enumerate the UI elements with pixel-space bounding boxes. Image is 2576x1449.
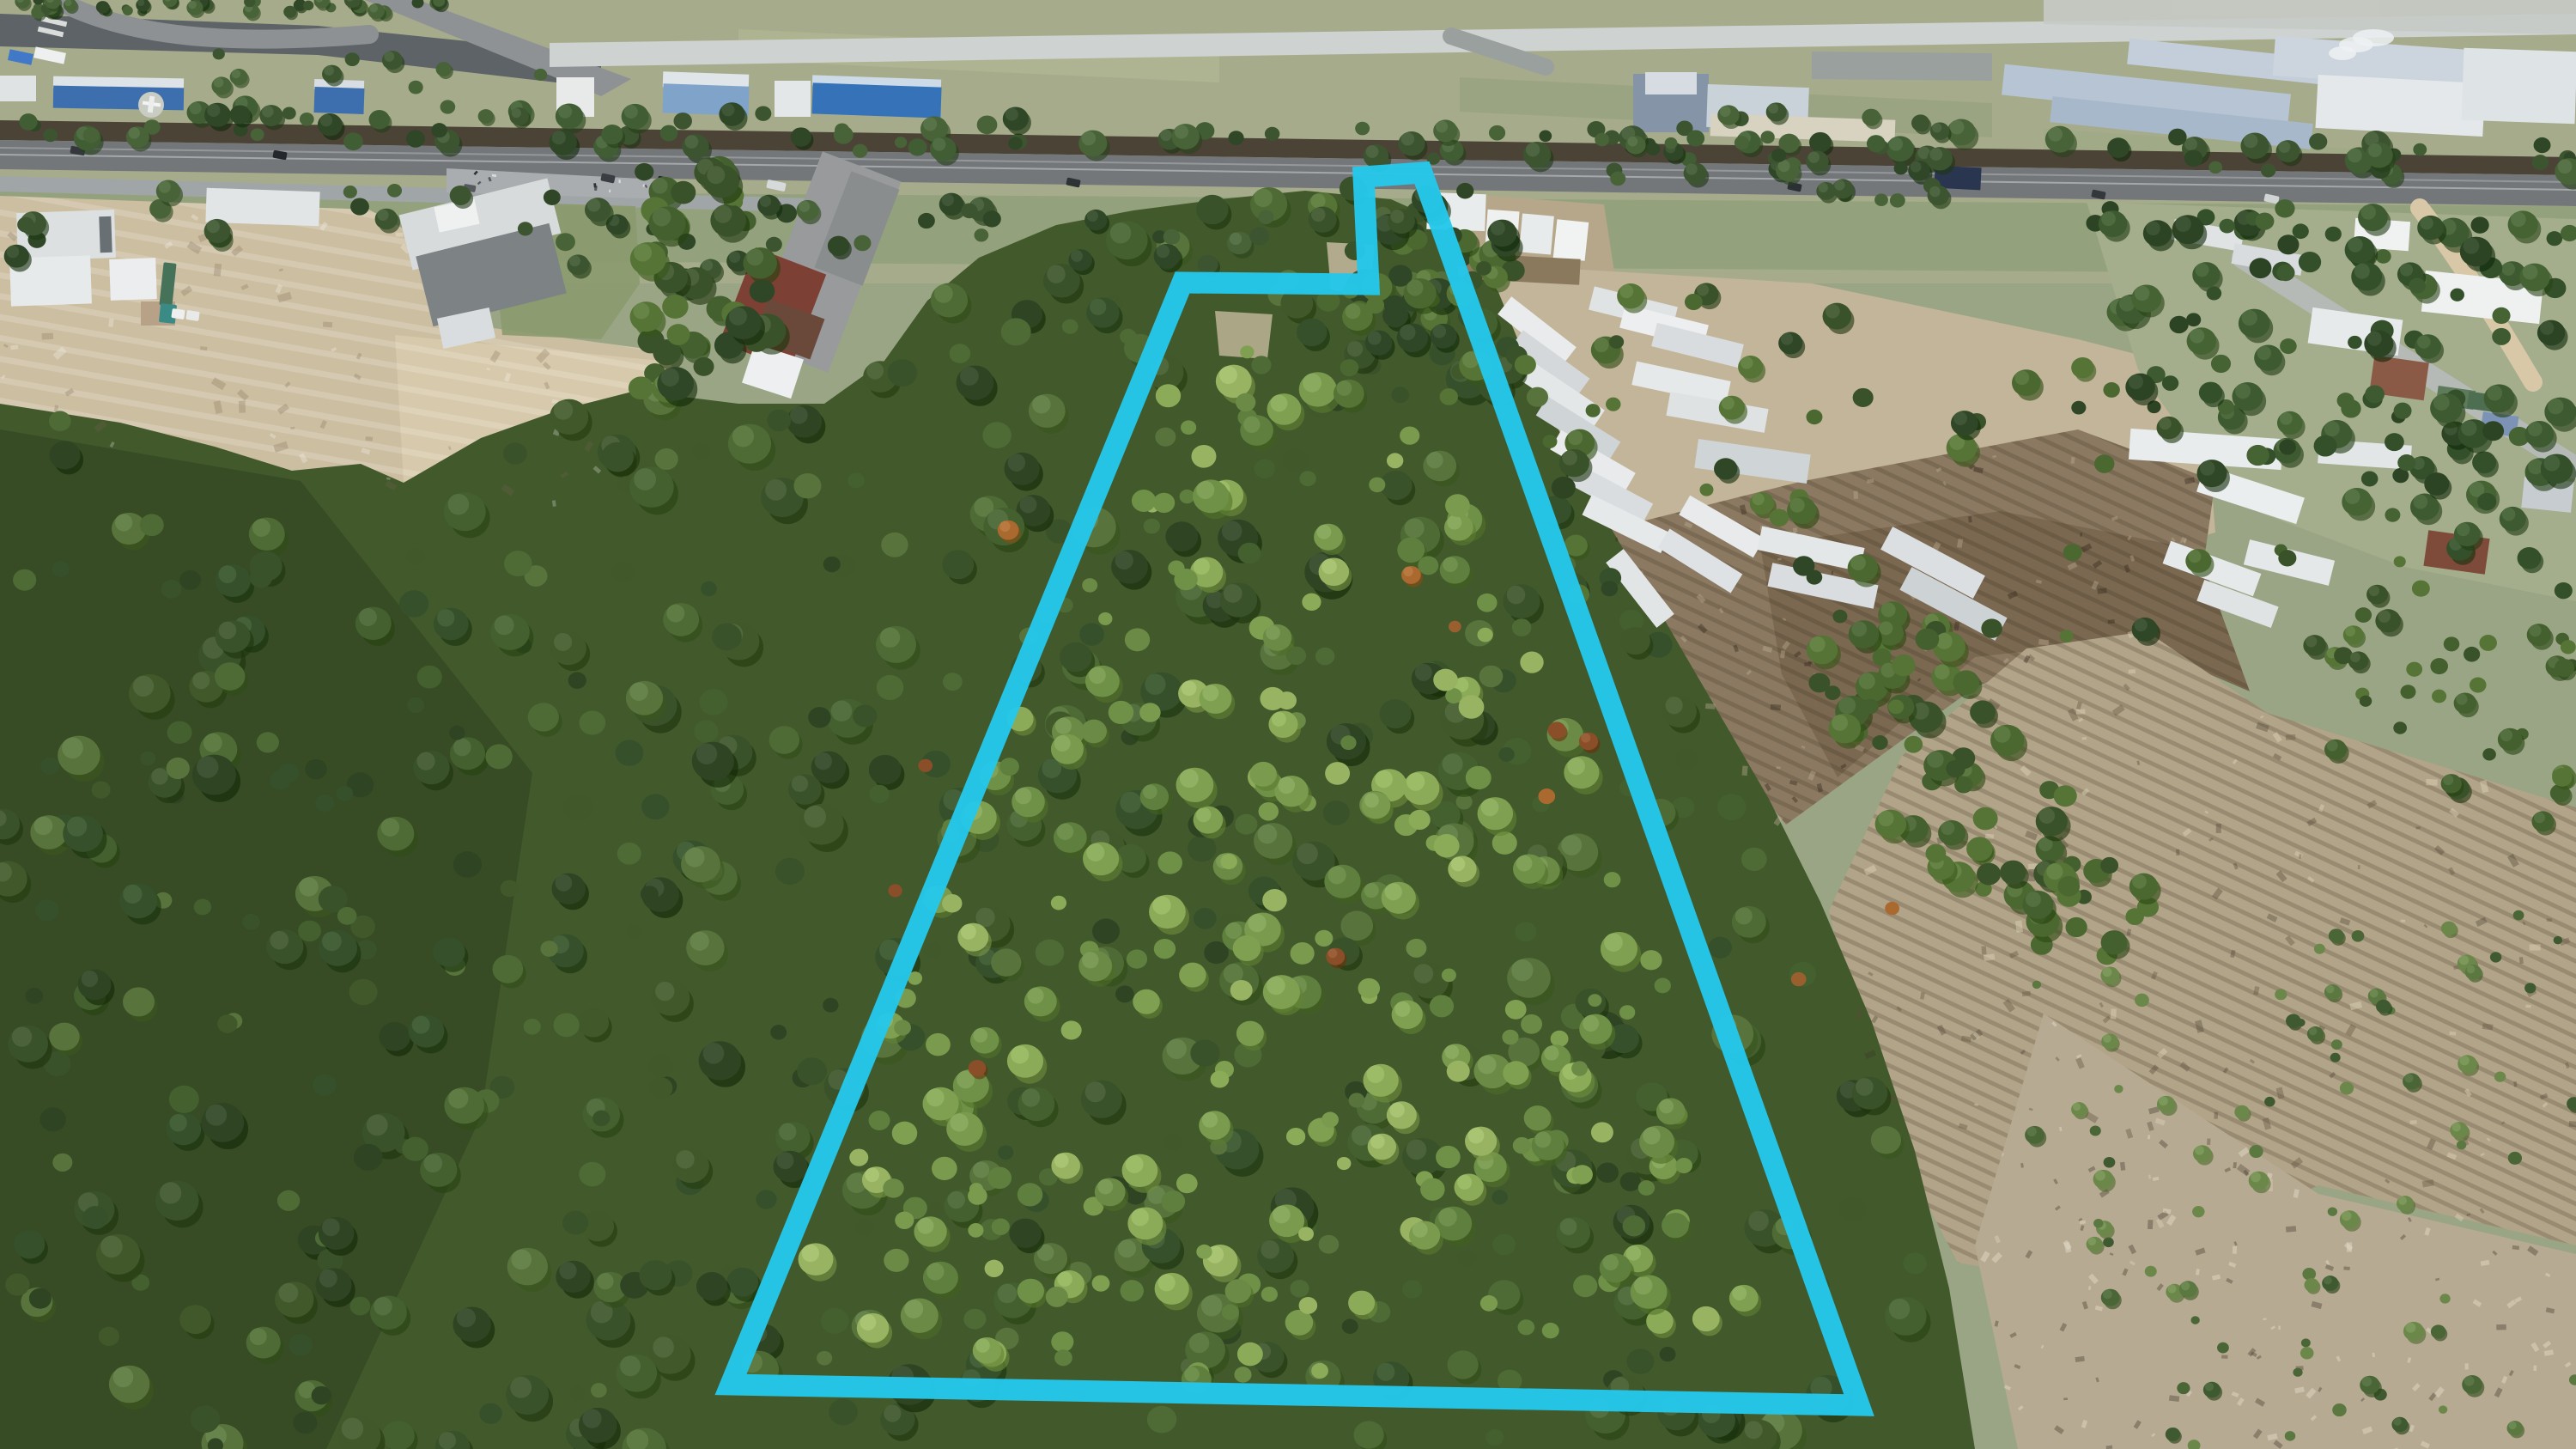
tree-highlight: [1643, 1127, 1660, 1144]
tree-crown: [1489, 125, 1505, 141]
tree-highlight: [1327, 948, 1337, 958]
tree-crown: [1586, 404, 1601, 417]
tree-highlight: [1686, 163, 1697, 174]
tree-crown: [1132, 490, 1156, 512]
tree-highlight: [2487, 386, 2502, 401]
field-speckles: [2569, 1121, 2576, 1128]
tree-crown: [983, 210, 1001, 228]
tree-highlight: [1028, 988, 1044, 1004]
tree-highlight: [1544, 1046, 1558, 1061]
tree-crown: [1620, 1172, 1641, 1191]
tree-crown: [1233, 935, 1261, 961]
tree-highlight: [1266, 625, 1280, 640]
tree-crown: [1125, 628, 1150, 651]
tree-crown: [1349, 1093, 1365, 1107]
tree-highlight: [2103, 967, 2112, 977]
tree-crown: [479, 1403, 501, 1424]
tree-highlight: [1953, 411, 1967, 425]
tree-crown: [2355, 607, 2372, 623]
tree-highlight: [1011, 1045, 1029, 1063]
tree-crown: [612, 562, 635, 582]
tree-highlight: [1732, 1286, 1747, 1300]
tree-highlight: [2095, 1171, 2105, 1181]
tree-highlight: [2188, 550, 2201, 563]
tree-highlight: [1032, 395, 1050, 413]
tree-highlight: [1405, 518, 1425, 538]
tree-highlight: [1929, 148, 1942, 161]
tree-crown: [2409, 278, 2426, 294]
aerial-photo: [0, 0, 2576, 1449]
tree-highlight: [975, 1338, 990, 1353]
tree-highlight: [559, 1262, 576, 1279]
tree-crown: [1081, 720, 1107, 744]
tree-highlight: [129, 127, 141, 139]
tree-crown: [562, 1211, 588, 1235]
tree-crown: [1498, 747, 1514, 762]
tree-crown: [2199, 382, 2222, 404]
dark-dirt-speckles: [2097, 588, 2106, 594]
tree-crown: [577, 1008, 609, 1038]
tree-highlight: [1385, 883, 1402, 900]
tree-highlight: [2146, 221, 2160, 235]
tree-highlight: [1347, 341, 1363, 356]
tree-crown: [1692, 1306, 1720, 1331]
tree-crown: [1282, 448, 1308, 472]
tree-crown: [1449, 621, 1461, 633]
tree-highlight: [2457, 523, 2470, 536]
tree-highlight: [1526, 143, 1540, 156]
tree-highlight: [1859, 673, 1875, 689]
tree-highlight: [1413, 1222, 1428, 1238]
tree-crown: [1191, 445, 1216, 468]
tree-crown: [35, 899, 59, 922]
tree-crown: [2184, 150, 2202, 167]
field-speckles: [2358, 865, 2360, 869]
tree-highlight: [1443, 753, 1463, 774]
tree-crown: [829, 1398, 858, 1425]
tree-highlight: [2456, 693, 2467, 704]
tree-crown: [1254, 459, 1275, 478]
tree-highlight: [1225, 922, 1242, 939]
tree-crown: [641, 886, 659, 902]
tree-highlight: [1085, 1081, 1106, 1102]
tree-crown: [1181, 420, 1196, 435]
tree-crown: [592, 1111, 610, 1127]
tree-highlight: [160, 1182, 181, 1203]
tree-crown: [2361, 471, 2379, 486]
tree-crown: [2275, 199, 2294, 217]
tree-highlight: [252, 519, 270, 537]
tree-highlight: [904, 1300, 923, 1318]
tree-crown: [1492, 1234, 1516, 1256]
tree-highlight: [1202, 1112, 1218, 1128]
tree-crown: [19, 113, 37, 131]
tree-highlight: [2367, 332, 2382, 346]
tree-crown: [1008, 137, 1023, 149]
tree-highlight: [151, 768, 167, 784]
tree-highlight: [2038, 807, 2055, 824]
tree-crown: [1808, 673, 1830, 692]
tree-crown: [1325, 762, 1350, 785]
tree-crown: [2217, 1342, 2229, 1354]
tree-crown: [849, 1148, 868, 1166]
tree-crown: [191, 1405, 221, 1433]
tree-highlight: [655, 982, 674, 1001]
tree-crown: [2302, 1268, 2316, 1280]
tree-crown: [1286, 1128, 1305, 1145]
tree-highlight: [1834, 180, 1844, 190]
tree-crown: [950, 344, 971, 363]
tree-crown: [2261, 163, 2275, 177]
tree-crown: [1079, 623, 1104, 645]
tree-crown: [2472, 451, 2496, 473]
tree-highlight: [67, 817, 87, 837]
tree-crown: [2555, 659, 2574, 677]
tree-highlight: [947, 1191, 965, 1209]
tree-highlight: [1443, 557, 1458, 572]
tree-highlight: [2046, 863, 2063, 880]
tree-highlight: [270, 931, 289, 950]
tree-crown: [293, 1412, 317, 1434]
dark-dirt-speckles: [1771, 704, 1781, 711]
tree-crown: [1660, 1347, 1676, 1361]
tree-crown: [350, 198, 369, 216]
tree-highlight: [1248, 914, 1266, 932]
tree-crown: [2309, 133, 2327, 150]
tree-crown: [1458, 1249, 1477, 1267]
tree-crown: [1953, 670, 1979, 694]
tree-crown: [1542, 1323, 1559, 1338]
tree-highlight: [1310, 193, 1325, 208]
tree-crown: [701, 581, 717, 596]
tree-crown: [998, 1145, 1013, 1160]
tree-highlight: [416, 752, 434, 770]
dark-dirt-speckles: [2080, 533, 2082, 536]
tree-highlight: [2362, 1377, 2372, 1387]
tree-crown: [1165, 521, 1198, 551]
tree-crown: [696, 1272, 727, 1300]
tree-crown: [2190, 1316, 2199, 1324]
tree-crown: [1321, 1112, 1339, 1128]
tree-crown: [1190, 1039, 1219, 1066]
tree-crown: [1807, 570, 1823, 585]
tree-crown: [1161, 1190, 1185, 1213]
tree-crown: [1197, 255, 1218, 274]
tree-crown: [169, 1086, 199, 1113]
tree-highlight: [1054, 735, 1071, 752]
tree-crown: [2100, 857, 2118, 874]
tree-crown: [895, 1212, 914, 1229]
tree-highlight: [82, 971, 98, 987]
tree-crown: [544, 190, 561, 205]
tree-crown: [2101, 930, 2128, 954]
tree-crown: [2255, 213, 2274, 230]
tree-highlight: [1516, 855, 1533, 872]
tree-crown: [1466, 766, 1492, 790]
tree-highlight: [1015, 788, 1031, 804]
tree-crown: [1518, 1319, 1535, 1335]
tree-crown: [1867, 135, 1886, 152]
tree-crown: [2331, 1039, 2342, 1050]
tree-crown: [1164, 1134, 1182, 1150]
tree-highlight: [2244, 134, 2258, 149]
tree-crown: [1156, 384, 1181, 407]
tree-crown: [1894, 162, 1908, 175]
tree-crown: [1606, 398, 1620, 411]
tree-crown: [1176, 1174, 1198, 1194]
tree-highlight: [1832, 715, 1848, 731]
tree-highlight: [1087, 210, 1098, 222]
tree-crown: [892, 1122, 918, 1145]
field-speckles: [2525, 1005, 2530, 1008]
tree-highlight: [1394, 1002, 1410, 1017]
tree-crown: [2192, 1206, 2204, 1217]
tree-highlight: [880, 627, 900, 647]
tree-highlight: [1097, 1179, 1113, 1195]
tree-crown: [1299, 1297, 1318, 1314]
tree-crown: [982, 422, 1011, 448]
tree-crown: [877, 675, 904, 700]
yard-speckles: [290, 427, 295, 429]
field-speckles: [1985, 834, 1994, 839]
tree-crown: [2431, 1324, 2446, 1338]
field-speckles: [2214, 1112, 2218, 1119]
tree-crown: [2293, 223, 2309, 239]
tree-crown: [2032, 981, 2041, 989]
tree-crown: [407, 549, 425, 565]
tree-crown: [1806, 410, 1822, 424]
scrub-speckles: [2533, 1366, 2537, 1372]
tree-crown: [1250, 762, 1277, 787]
tree-crown: [2534, 137, 2551, 153]
tree-crown: [1619, 1005, 1635, 1020]
tree-crown: [2114, 1085, 2123, 1093]
tree-crown: [1665, 137, 1678, 149]
tree-crown: [2208, 161, 2222, 174]
tree-highlight: [1850, 555, 1866, 570]
tree-crown: [817, 1351, 832, 1366]
tree-crown: [1179, 963, 1206, 988]
tree-highlight: [2500, 729, 2512, 741]
field-speckles: [2401, 919, 2406, 922]
tree-crown: [2513, 910, 2524, 921]
tree-highlight: [1491, 221, 1505, 235]
tree-crown: [1238, 543, 1261, 564]
tree-highlight: [1224, 584, 1242, 603]
tree-crown: [629, 376, 653, 399]
tree-highlight: [2368, 143, 2382, 157]
tree-crown: [1791, 972, 1807, 986]
tree-crown: [2314, 944, 2325, 954]
tree-crown: [556, 233, 575, 251]
tree-crown: [1319, 1235, 1340, 1254]
tree-crown: [1503, 1061, 1528, 1085]
tree-highlight: [1194, 558, 1210, 575]
tree-crown: [2441, 922, 2457, 936]
tree-crown: [167, 721, 192, 744]
tree-crown: [2220, 219, 2235, 234]
tree-highlight: [1184, 1367, 1199, 1381]
tree-highlight: [1057, 824, 1073, 840]
tree-crown: [1036, 940, 1065, 966]
tree-highlight: [1189, 1333, 1209, 1353]
tree-crown: [895, 137, 907, 148]
tree-highlight: [1346, 304, 1361, 320]
tree-highlight: [510, 1377, 532, 1398]
tree-crown: [591, 1383, 607, 1397]
tree-crown: [305, 759, 327, 779]
tree-crown: [504, 551, 532, 576]
tree-crown: [2341, 399, 2360, 417]
tree-crown: [1051, 896, 1066, 910]
tree-crown: [2470, 216, 2488, 234]
tree-crown: [436, 62, 452, 76]
tree-crown: [821, 1308, 849, 1334]
tree-crown: [1433, 669, 1457, 691]
tree-highlight: [2327, 740, 2338, 752]
tree-crown: [1163, 229, 1181, 245]
tree-highlight: [204, 734, 222, 752]
tree-highlight: [2088, 1237, 2097, 1245]
tree-crown: [999, 758, 1019, 776]
tree-highlight: [799, 201, 810, 212]
tree-crown: [2275, 989, 2287, 1000]
tree-crown: [2444, 636, 2460, 651]
tree-crown: [1588, 994, 1601, 1007]
tree-highlight: [1328, 866, 1346, 884]
tree-crown: [2393, 721, 2407, 734]
tree-highlight: [831, 701, 852, 721]
tree-crown: [2555, 582, 2573, 599]
tree-crown: [1265, 127, 1280, 141]
tree-crown: [2264, 1097, 2275, 1107]
tree-highlight: [1090, 299, 1106, 315]
yard-speckles: [239, 401, 246, 413]
tree-crown: [409, 81, 423, 94]
tree-crown: [1966, 837, 1993, 861]
tree-highlight: [2398, 1196, 2407, 1205]
tree-crown: [1770, 508, 1789, 527]
tree-highlight: [7, 246, 20, 259]
tree-crown: [1340, 910, 1373, 941]
tree-crown: [2300, 1347, 2314, 1359]
tree-highlight: [1202, 685, 1218, 701]
tree-crown: [2071, 357, 2093, 378]
tree-crown: [1299, 471, 1315, 486]
tree-crown: [1685, 294, 1703, 310]
tree-crown: [345, 52, 360, 66]
tree-crown: [1109, 701, 1134, 724]
tree-crown: [1838, 1197, 1866, 1222]
tree-highlight: [1126, 1155, 1144, 1173]
tree-highlight: [934, 284, 953, 303]
tree-crown: [854, 235, 871, 251]
tree-crown: [1675, 749, 1698, 770]
tree-crown: [96, 1, 110, 13]
tree-crown: [1369, 478, 1385, 493]
tree-crown: [2170, 316, 2189, 333]
tree-crown: [2518, 547, 2542, 569]
tree-highlight: [998, 1284, 1018, 1304]
tree-crown: [726, 1268, 758, 1297]
tree-crown: [963, 1309, 986, 1330]
tree-highlight: [1271, 395, 1288, 412]
tree-highlight: [1082, 131, 1097, 146]
tree-highlight: [1131, 1209, 1149, 1227]
tree-highlight: [2350, 652, 2360, 662]
scrub-speckles: [2278, 1326, 2281, 1330]
tree-highlight: [457, 1308, 476, 1327]
tree-crown: [1384, 295, 1405, 314]
tree-crown: [985, 1260, 1004, 1277]
warehouse-white-1: [2316, 75, 2486, 137]
tree-highlight: [437, 609, 454, 626]
tree-highlight: [2026, 892, 2041, 907]
aerial-photo-canvas: [0, 0, 2576, 1449]
tree-highlight: [369, 4, 378, 13]
tree-highlight: [707, 166, 725, 184]
field-speckles: [2076, 709, 2086, 715]
tree-highlight: [927, 1088, 945, 1106]
tree-highlight: [1562, 450, 1577, 466]
tree-crown: [540, 941, 557, 957]
tree-crown: [453, 851, 482, 877]
tree-crown: [2249, 1145, 2263, 1158]
tree-crown: [987, 1167, 1012, 1190]
tree-crown: [2250, 258, 2272, 278]
tree-crown: [1400, 426, 1419, 444]
tree-crown: [1154, 939, 1176, 959]
tree-highlight: [1406, 279, 1423, 295]
tree-highlight: [1720, 106, 1731, 117]
tree-highlight: [2181, 1282, 2190, 1290]
tree-highlight: [1560, 1218, 1577, 1235]
tree-crown: [215, 662, 246, 691]
tree-crown: [2135, 994, 2149, 1007]
tree-highlight: [1415, 664, 1432, 681]
tree-highlight: [34, 817, 53, 836]
tree-crown: [648, 1055, 673, 1078]
tree-crown: [26, 988, 43, 1004]
tree-highlight: [205, 1105, 227, 1126]
tree-highlight: [1273, 1206, 1291, 1224]
tree-highlight: [1619, 284, 1633, 298]
tree-crown: [2376, 1000, 2391, 1014]
tree-crown: [1237, 1342, 1263, 1367]
hangar-white-far-left: [0, 76, 36, 101]
tree-highlight: [2345, 626, 2355, 636]
tree-crown: [485, 744, 512, 769]
tree-highlight: [721, 103, 734, 116]
tree-highlight: [1057, 1271, 1072, 1287]
tree-crown: [1571, 1165, 1593, 1184]
tree-crown: [1626, 1349, 1654, 1374]
tree-crown: [369, 110, 390, 129]
tree-highlight: [1457, 1175, 1472, 1190]
tree-crown: [2207, 286, 2222, 300]
tree-crown: [2246, 445, 2269, 466]
tree-highlight: [1625, 1245, 1641, 1261]
tree-highlight: [2103, 1034, 2111, 1043]
tree-highlight: [1634, 1276, 1652, 1294]
tree-crown: [1459, 695, 1485, 718]
tree-highlight: [1086, 843, 1104, 861]
tree-crown: [2561, 640, 2576, 654]
scrub-speckles: [2063, 1397, 2068, 1400]
hangar-white-mid: [775, 81, 811, 117]
tree-highlight: [2190, 328, 2204, 343]
tree-crown: [2439, 1405, 2447, 1414]
